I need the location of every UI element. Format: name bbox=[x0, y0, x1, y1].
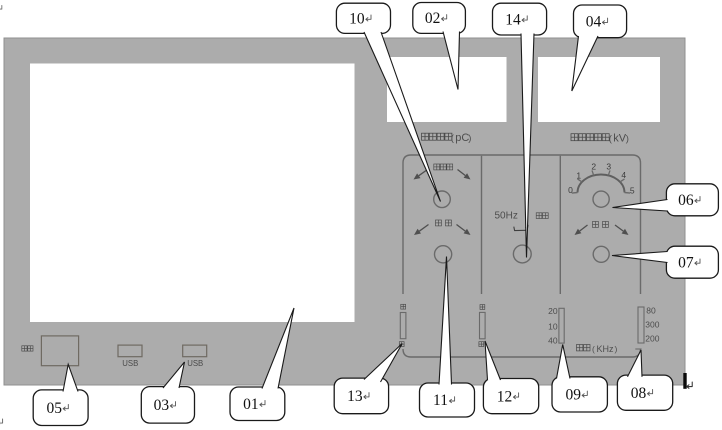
svg-text:09: 09 bbox=[565, 387, 581, 404]
svg-text:pC: pC bbox=[455, 132, 469, 144]
svg-text:): ) bbox=[468, 133, 471, 144]
svg-text:40: 40 bbox=[548, 336, 558, 346]
svg-text:KHz: KHz bbox=[597, 344, 615, 354]
svg-text:80: 80 bbox=[646, 306, 656, 316]
svg-text:): ) bbox=[626, 134, 629, 145]
svg-text:03: 03 bbox=[154, 397, 170, 414]
svg-text:5: 5 bbox=[630, 185, 635, 195]
svg-text:06: 06 bbox=[678, 192, 694, 209]
svg-text:2: 2 bbox=[591, 162, 596, 172]
svg-text:08: 08 bbox=[631, 385, 647, 402]
svg-text:12: 12 bbox=[497, 388, 513, 405]
svg-text:05: 05 bbox=[46, 400, 62, 417]
svg-text:): ) bbox=[615, 344, 618, 354]
svg-text:1: 1 bbox=[576, 170, 581, 180]
svg-text:04: 04 bbox=[586, 14, 602, 31]
svg-text:10: 10 bbox=[349, 11, 365, 28]
svg-text:0: 0 bbox=[568, 185, 573, 195]
svg-text:02: 02 bbox=[425, 10, 441, 27]
svg-text:USB: USB bbox=[122, 359, 138, 368]
svg-text:01: 01 bbox=[243, 396, 259, 413]
svg-text:10: 10 bbox=[548, 321, 558, 331]
svg-text:200: 200 bbox=[645, 333, 659, 343]
svg-text:USB: USB bbox=[187, 359, 203, 368]
svg-text:(: ( bbox=[592, 344, 595, 354]
svg-text:3: 3 bbox=[606, 161, 611, 171]
svg-text:kV: kV bbox=[613, 133, 627, 145]
svg-text:300: 300 bbox=[645, 319, 659, 329]
svg-text:20: 20 bbox=[548, 306, 558, 316]
svg-text:14: 14 bbox=[505, 11, 521, 28]
svg-text:4: 4 bbox=[621, 170, 626, 180]
svg-text:50Hz: 50Hz bbox=[495, 211, 518, 222]
svg-text:07: 07 bbox=[678, 254, 694, 271]
svg-text:13: 13 bbox=[347, 388, 363, 405]
svg-text:11: 11 bbox=[433, 392, 448, 409]
